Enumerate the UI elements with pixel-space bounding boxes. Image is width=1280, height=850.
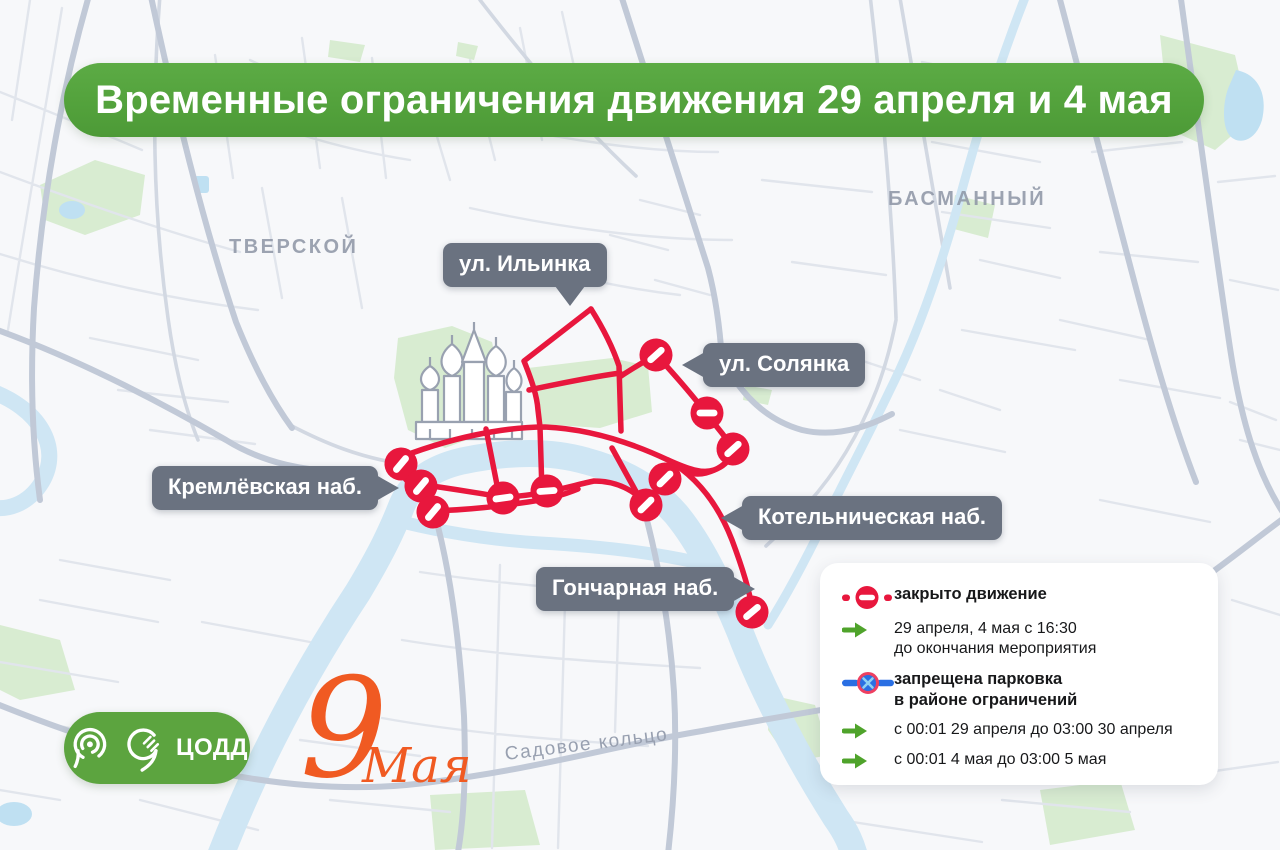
page-title: Временные ограничения движения 29 апреля… [95, 78, 1173, 123]
street-label-text: Кремлёвская наб. [168, 474, 362, 499]
district-label-basmanny: БАСМАННЫЙ [888, 188, 1046, 211]
street-label-text: ул. Ильинка [459, 251, 591, 276]
district-label-tverskoy: ТВЕРСКОЙ [229, 236, 358, 259]
street-label-text: ул. Солянка [719, 351, 849, 376]
street-label-kremlevskaya: Кремлёвская наб. [152, 466, 378, 510]
street-label-kotelnicheskaya: Котельническая наб. [742, 496, 1002, 540]
legend-row-closed-schedule: 29 апреля, 4 мая с 16:30 до окончания ме… [842, 619, 1198, 660]
legend-closed-schedule: 29 апреля, 4 мая с 16:30 до окончания ме… [894, 619, 1096, 660]
pointer-left [721, 505, 744, 531]
green-arrow-icon [842, 620, 894, 640]
legend-parking-schedule-2: с 00:01 4 мая до 03:00 5 мая [894, 750, 1106, 770]
no-entry-dash-icon [842, 585, 894, 610]
legend-row-parking-schedule-2: с 00:01 4 мая до 03:00 5 мая [842, 750, 1198, 771]
no-entry-icon [691, 397, 724, 430]
codd-label: ЦОДД [176, 734, 248, 762]
street-label-solyanka: ул. Солянка [703, 343, 865, 387]
legend-parking-label: запрещена парковка в районе ограничений [894, 669, 1077, 711]
street-label-text: Котельническая наб. [758, 504, 986, 529]
legend-row-parking-schedule-1: с 00:01 29 апреля до 03:00 30 апреля [842, 720, 1198, 741]
no-parking-icon [842, 670, 894, 696]
pointer-right [376, 475, 399, 501]
street-label-text: Гончарная наб. [552, 575, 718, 600]
pointer-down [555, 286, 585, 306]
traffic-restrictions-infographic: Временные ограничения движения 29 апреля… [0, 0, 1280, 850]
title-banner: Временные ограничения движения 29 апреля… [64, 63, 1204, 137]
street-label-ilyinka: ул. Ильинка [443, 243, 607, 287]
closed-schedule-line2: до окончания мероприятия [894, 640, 1096, 657]
legend-closed-label: закрыто движение [894, 584, 1047, 605]
codd-logo-pill: ЦОДД [64, 712, 250, 784]
street-label-goncharnaya: Гончарная наб. [536, 567, 734, 611]
legend-card: закрыто движение 29 апреля, 4 мая с 16:3… [820, 563, 1218, 785]
moscow-transport-icon [66, 723, 112, 773]
parking-label-line2: в районе ограничений [894, 691, 1077, 709]
green-arrow-icon [842, 721, 894, 741]
codd-pin-icon [121, 723, 167, 773]
may9-word: Мая [362, 742, 472, 790]
pointer-left [682, 352, 705, 378]
legend-row-closed: закрыто движение [842, 584, 1198, 610]
closed-schedule-line1: 29 апреля, 4 мая с 16:30 [894, 620, 1077, 637]
legend-parking-schedule-1: с 00:01 29 апреля до 03:00 30 апреля [894, 720, 1173, 740]
pointer-right [732, 576, 755, 602]
green-arrow-icon [842, 751, 894, 771]
parking-label-line1: запрещена парковка [894, 670, 1062, 688]
legend-row-parking: запрещена парковка в районе ограничений [842, 669, 1198, 711]
